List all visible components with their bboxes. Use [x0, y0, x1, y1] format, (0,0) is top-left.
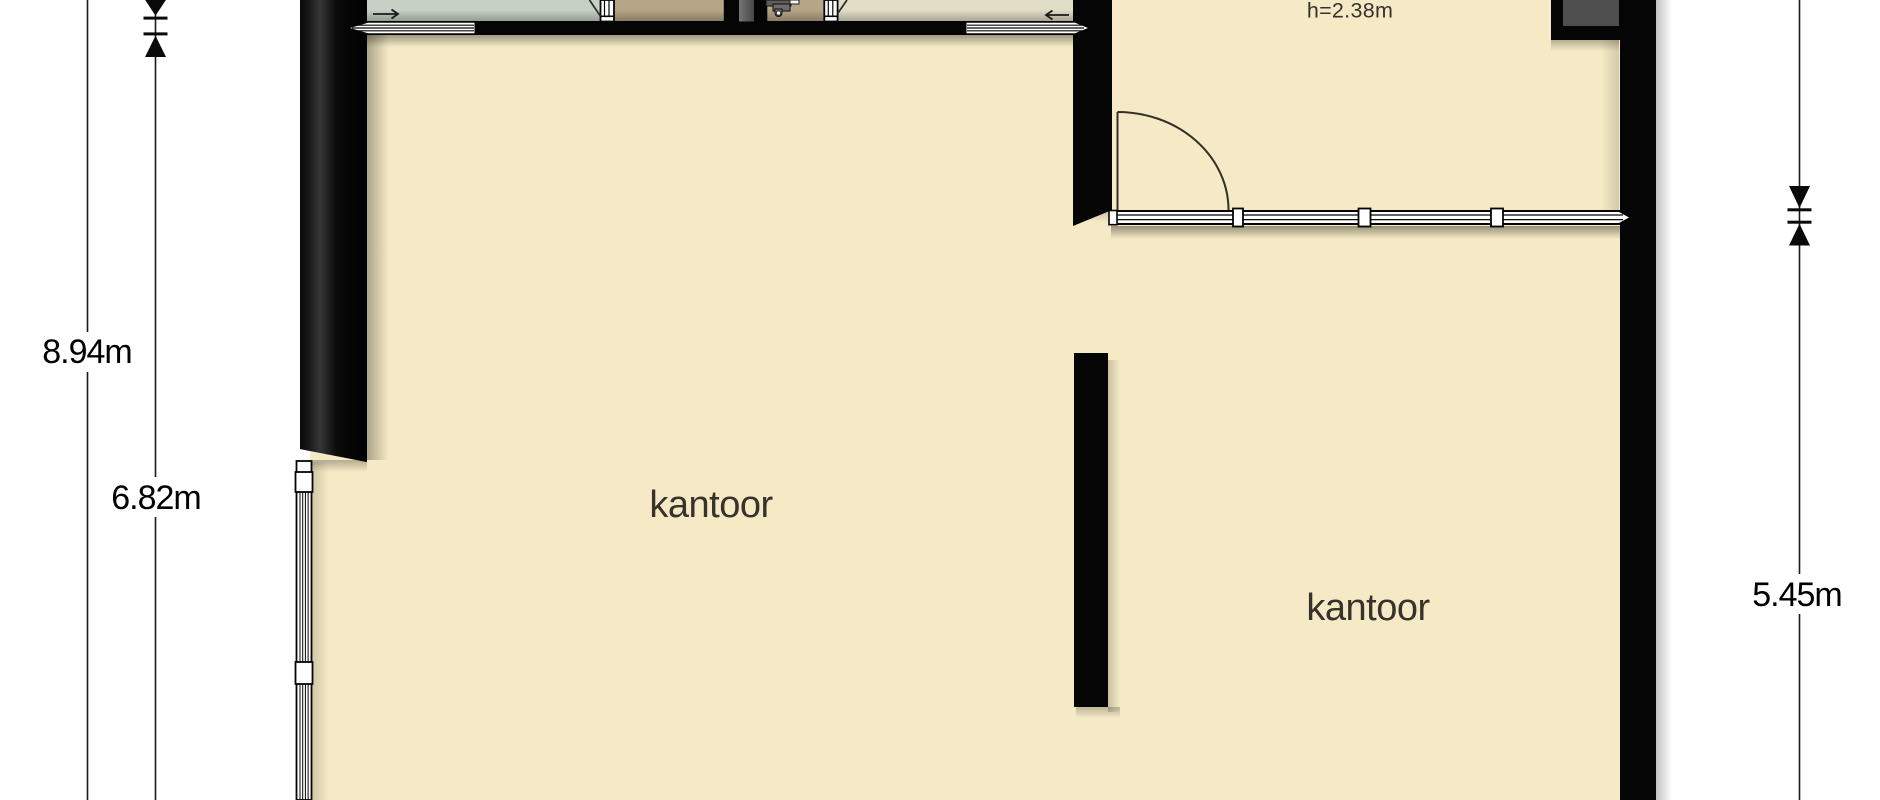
svg-text:h=2.38m: h=2.38m [1307, 0, 1393, 23]
svg-text:kantoor: kantoor [1306, 587, 1430, 629]
svg-text:8.94m: 8.94m [42, 333, 132, 371]
svg-text:kantoor: kantoor [649, 484, 773, 526]
svg-text:6.82m: 6.82m [111, 479, 201, 517]
svg-text:5.45m: 5.45m [1752, 576, 1842, 614]
